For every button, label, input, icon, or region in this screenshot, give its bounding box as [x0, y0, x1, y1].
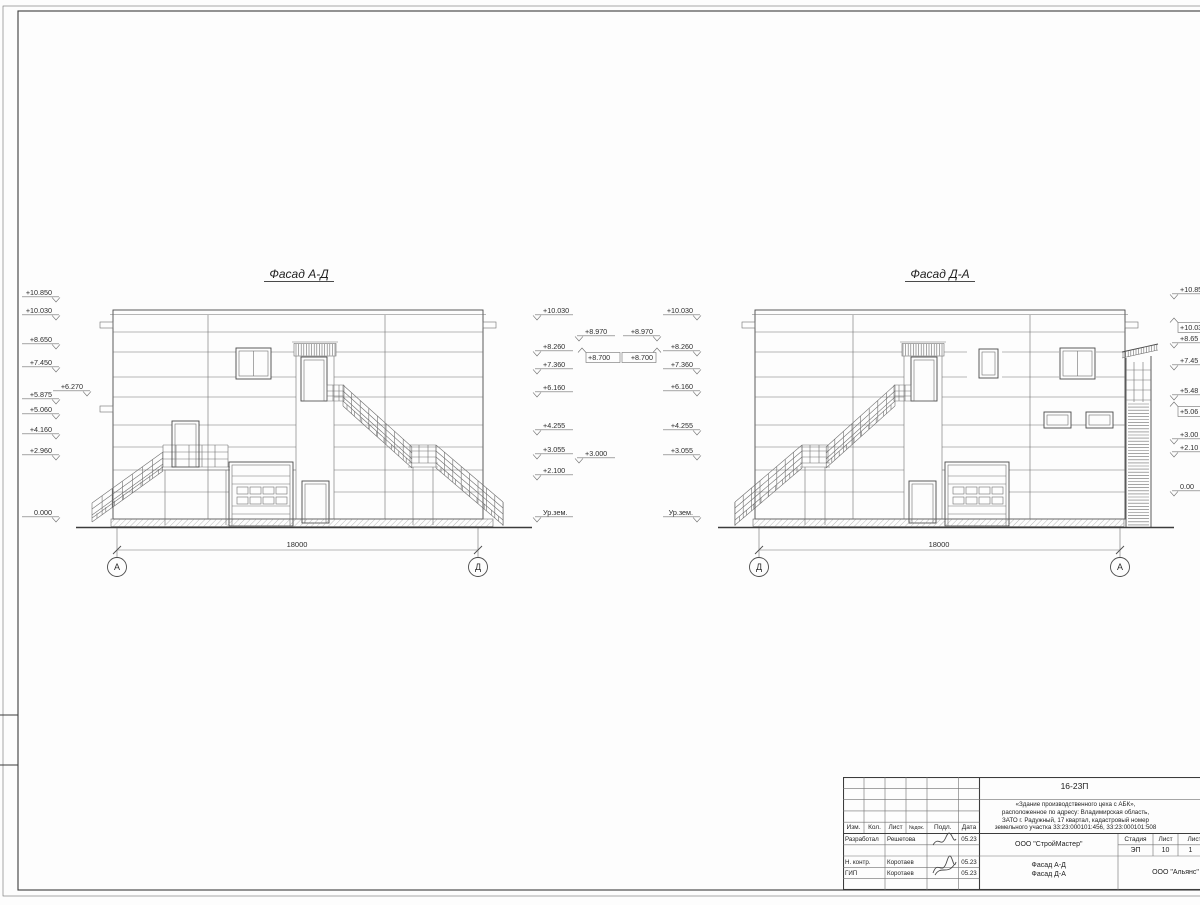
sheets-value: 1: [1178, 847, 1200, 856]
axis-label: А: [1117, 562, 1123, 572]
title-block: 16-23П «Здание производственного цеха с …: [843, 777, 1200, 890]
project-description: «Здание производственного цеха с АБК», р…: [983, 801, 1168, 832]
rev-col-izm: Изм.: [843, 824, 864, 832]
staff-name: Решетова: [887, 836, 927, 844]
elevation-mark-label: +7.45: [1180, 356, 1198, 365]
facade-ad-title: Фасад А-Д: [269, 267, 329, 281]
facade-ad-elevation-marks: +10.850+10.030+8.650+7.450+5.875+5.060+4…: [22, 288, 620, 522]
rev-col-podl: Подл.: [927, 824, 959, 832]
elevation-mark-label: +6.160: [543, 383, 565, 392]
axis-label: Д: [756, 562, 762, 572]
staff-name: Коротаев: [887, 870, 927, 878]
axis-label: Д: [475, 562, 481, 572]
elevation-mark-label: +5.06: [1180, 407, 1198, 416]
stage-label: Стадия: [1118, 836, 1153, 844]
elevation-mark-label: +10.030: [26, 306, 52, 315]
elevation-mark-label: +2.10: [1180, 443, 1198, 452]
sheet-value: 10: [1153, 847, 1178, 856]
elevation-mark-label: +4.255: [543, 421, 565, 430]
rev-col-list: Лист: [885, 824, 906, 832]
elevation-mark-label: +8.700: [588, 353, 610, 362]
signature-gip: [933, 856, 956, 875]
drawing-sheet: { "facades": [ { "title": "Фасад А-Д", "…: [0, 0, 1200, 900]
rev-col-ndok: №док.: [906, 825, 927, 832]
elevation-mark-label: +8.650: [30, 335, 52, 344]
elevation-mark-label: +4.255: [671, 421, 693, 430]
elevation-mark-label: +5.48: [1180, 386, 1198, 395]
elevation-mark-label: Ур.зем.: [669, 508, 693, 517]
elevation-mark-label: +8.970: [631, 327, 653, 336]
elevation-mark-label: 0.000: [34, 508, 52, 517]
elevation-mark-label: +8.970: [585, 327, 607, 336]
dimension-label-ad: 18000: [287, 540, 308, 549]
staff-role: ГИП: [845, 870, 885, 878]
elevation-mark-label: +3.055: [543, 445, 565, 454]
signature-razrabotal: [933, 833, 956, 845]
elevation-mark-label: +3.00: [1180, 430, 1198, 439]
elevation-mark-label: +10.03: [1180, 323, 1200, 332]
organization: ООО "СтройМастер": [980, 834, 1119, 857]
sheet-canvas: Фасад А-Д Фасад Д-А 18000 18000 АД+10.85…: [0, 0, 1200, 900]
rev-col-kol: Кол.: [864, 824, 885, 832]
elevation-mark-label: +10.85: [1180, 285, 1200, 294]
contractor: ООО "Альянс": [1118, 856, 1200, 890]
elevation-mark-label: +8.260: [671, 342, 693, 351]
sheet-label: Лист: [1153, 836, 1178, 844]
elevation-mark-label: +3.055: [671, 446, 693, 455]
elevation-mark-label: 0.00: [1180, 482, 1194, 491]
facade-da-title: Фасад Д-А: [910, 267, 969, 281]
staff-role: Разработал: [845, 836, 885, 844]
stage-value: ЭП: [1118, 847, 1153, 856]
elevation-mark-label: +7.450: [30, 358, 52, 367]
staff-name: Коротаев: [887, 859, 927, 867]
staff-date: 05.23: [959, 870, 980, 878]
facade-da-elevation-marks: +8.970+8.700+10.030+8.260+7.360+6.160+4.…: [622, 285, 1200, 522]
elevation-mark-label: +10.030: [667, 306, 693, 315]
elevation-mark-label: +6.270: [61, 382, 83, 391]
staff-date: 05.23: [959, 859, 980, 867]
elevation-mark-label: +3.000: [585, 449, 607, 458]
axis-label: А: [114, 562, 120, 572]
elevation-mark-label: +6.160: [671, 382, 693, 391]
dimension-label-da: 18000: [929, 540, 950, 549]
elevation-mark-label: +7.360: [671, 360, 693, 369]
rev-col-data: Дата: [959, 824, 980, 832]
elevation-mark-label: +7.360: [543, 360, 565, 369]
elevation-mark-label: +8.260: [543, 342, 565, 351]
facade-da-drawing: ДА: [718, 310, 1174, 577]
elevation-mark-label: +10.850: [26, 288, 52, 297]
facade-ad-drawing: АД: [76, 310, 532, 577]
staff-role: Н. контр.: [845, 859, 885, 867]
elevation-mark-label: +8.65: [1180, 334, 1198, 343]
elevation-mark-label: +2.100: [543, 466, 565, 475]
drawing-title: Фасад А-Д Фасад Д-А: [980, 862, 1119, 880]
elevation-mark-label: +4.160: [30, 425, 52, 434]
elevation-mark-label: +8.700: [631, 353, 653, 362]
elevation-mark-label: +5.875: [30, 390, 52, 399]
elevation-mark-label: Ур.зем.: [543, 508, 567, 517]
elevation-mark-label: +5.060: [30, 405, 52, 414]
elevation-mark-label: +2.960: [30, 446, 52, 455]
staff-date: 05.23: [959, 836, 980, 844]
elevation-mark-label: +10.030: [543, 306, 569, 315]
sheets-label: Листов: [1178, 836, 1200, 844]
doc-number: 16-23П: [980, 781, 1170, 792]
